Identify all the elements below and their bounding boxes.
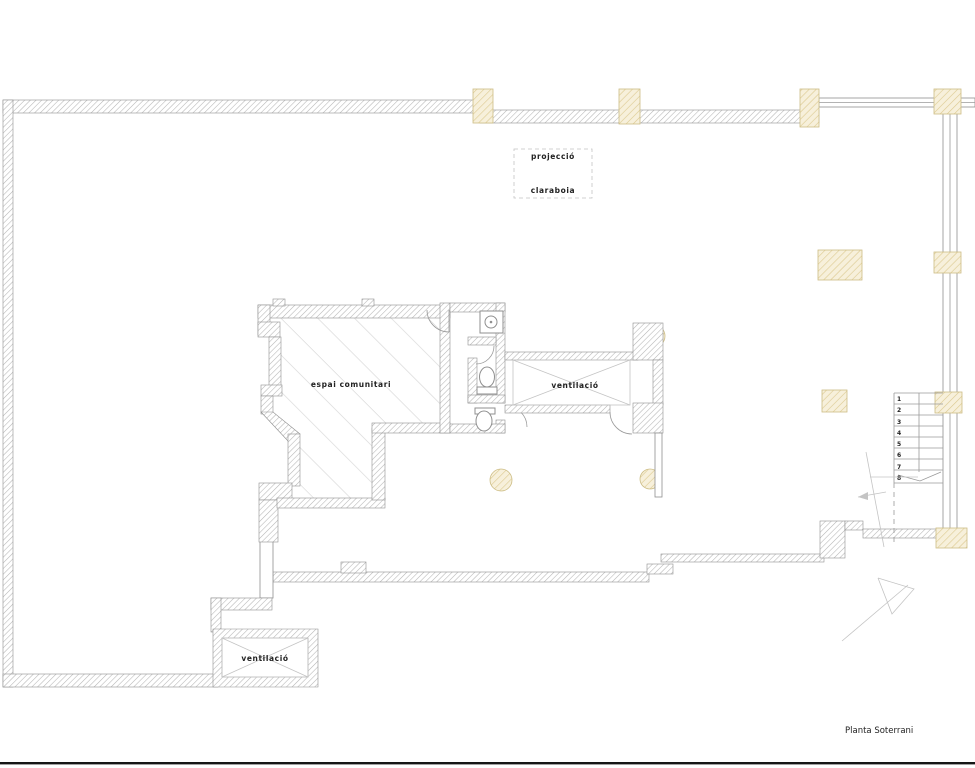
ventilation-duct-label: ventilació — [551, 381, 598, 390]
bathroom — [450, 303, 527, 433]
community-room: espai comunitari — [258, 299, 450, 542]
north-arrow-icon — [842, 578, 914, 641]
stair-step-number: 1 — [897, 396, 901, 403]
stair-step-number: 2 — [897, 407, 901, 414]
ventilation-shaft-sw: ventilació — [213, 629, 318, 687]
stair-step-number: 5 — [897, 441, 901, 448]
stair-step-number: 3 — [897, 419, 901, 426]
page-edge-bar — [0, 762, 975, 764]
skylight-label-1: projecció — [531, 152, 575, 161]
drawing-canvas: projecció claraboia espai comunitari — [0, 0, 975, 768]
toilet-icon — [477, 367, 497, 394]
skylight-label-2: claraboia — [531, 186, 575, 195]
ventilation-duct: ventilació — [505, 323, 663, 497]
plan-title: Planta Soterrani — [845, 726, 913, 736]
ventilation-shaft-label: ventilació — [241, 654, 288, 663]
staircase: 1 2 3 4 5 6 7 8 — [894, 393, 943, 545]
stair-step-number: 4 — [897, 430, 901, 437]
stair-step-number: 6 — [897, 452, 901, 459]
stair-step-number: 7 — [897, 464, 901, 471]
sink-icon — [480, 311, 503, 333]
skylight-projection: projecció claraboia — [514, 149, 592, 198]
stair-step-number: 8 — [897, 475, 901, 482]
community-room-label: espai comunitari — [311, 380, 391, 389]
floor-plan-svg: projecció claraboia espai comunitari — [0, 0, 975, 768]
